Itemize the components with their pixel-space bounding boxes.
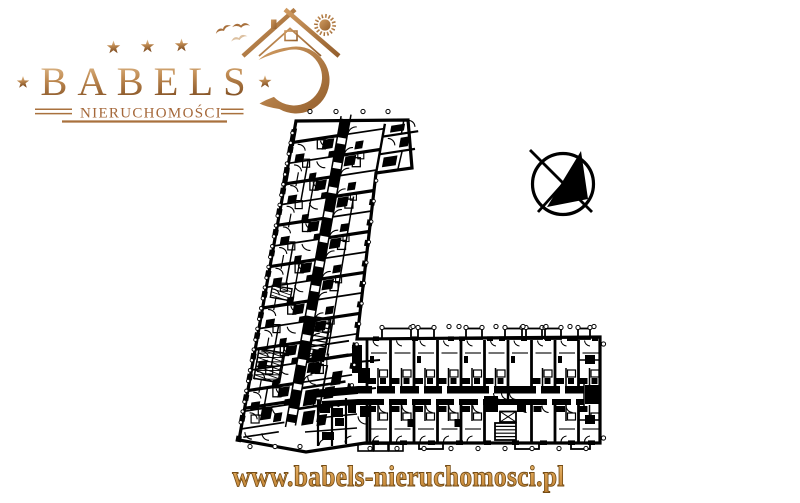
svg-text:NIERUCHOMOŚCI: NIERUCHOMOŚCI: [80, 105, 222, 122]
svg-text:www.babels-nieruchomosci.pl: www.babels-nieruchomosci.pl: [232, 460, 564, 493]
svg-text:BABELS: BABELS: [40, 59, 255, 104]
